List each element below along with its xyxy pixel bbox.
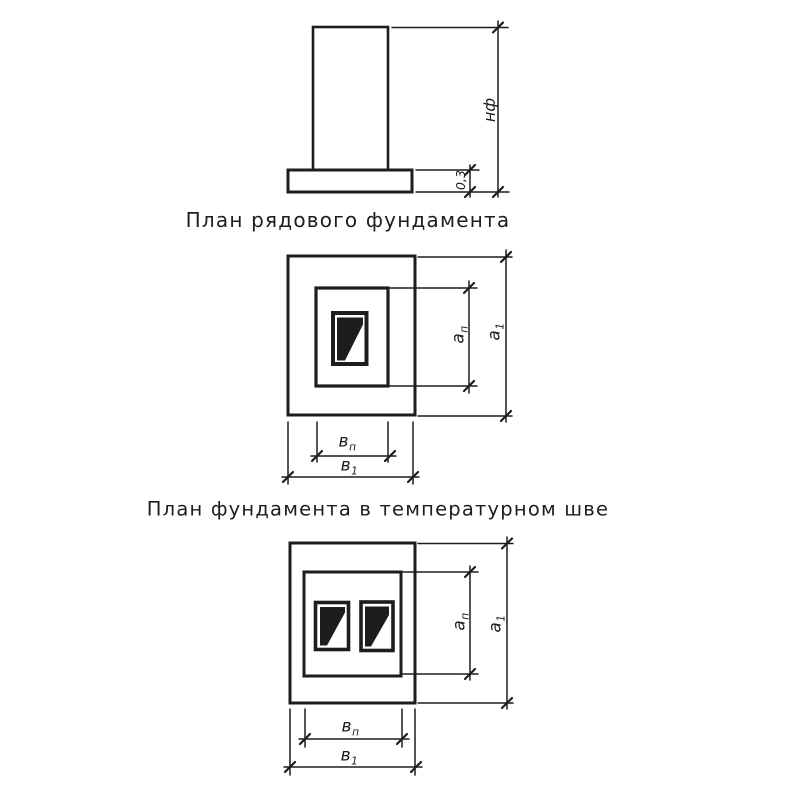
drawing-sheet: нф 0,3 План рядового фундамента ап а1 вп… bbox=[0, 0, 800, 800]
expansion-joint-foundation-plan bbox=[284, 537, 513, 775]
regular-foundation-plan bbox=[282, 250, 512, 484]
dim-label-a-p-2-base: а bbox=[450, 620, 470, 630]
dim-label-a-1-2-sub: 1 bbox=[495, 615, 507, 622]
elevation-view bbox=[288, 21, 509, 197]
dim-label-b-1-2-sub: 1 bbox=[351, 755, 358, 767]
dim-label-b-p-base: в bbox=[339, 432, 349, 452]
dim-label-b-p-2-base: в bbox=[342, 717, 352, 737]
dim-label-b-1-2: в1 bbox=[341, 748, 358, 765]
dim-label-a-p-base: а bbox=[449, 333, 469, 343]
dim-label-a-p: ап bbox=[451, 326, 468, 343]
dim-label-b-1: в1 bbox=[341, 458, 358, 475]
dim-label-a-1-base: а bbox=[485, 330, 505, 340]
dim-label-b-1-2-base: в bbox=[341, 746, 351, 766]
dim-label-foundation-height: нф bbox=[482, 98, 498, 122]
dim-label-b-1-sub: 1 bbox=[351, 465, 358, 477]
dim-label-slab-thickness: 0,3 bbox=[455, 170, 468, 190]
title-regular-foundation-plan: План рядового фундамента bbox=[186, 210, 511, 230]
dim-label-a-1-2-base: а bbox=[486, 622, 506, 632]
dim-label-a-p-2: ап bbox=[452, 613, 469, 630]
dim-label-a-p-sub: п bbox=[458, 326, 470, 333]
dim-label-b-p-sub: п bbox=[349, 441, 356, 453]
column-outline bbox=[313, 27, 388, 170]
dim-label-b-p: вп bbox=[339, 434, 356, 451]
dim-label-a-1: а1 bbox=[487, 323, 504, 340]
dim-label-b-p-2: вп bbox=[342, 719, 359, 736]
dim-label-b-1-base: в bbox=[341, 456, 351, 476]
drawing-linework bbox=[0, 0, 800, 800]
dim-label-a-1-sub: 1 bbox=[494, 323, 506, 330]
dim-label-b-p-2-sub: п bbox=[352, 726, 359, 738]
dim-label-a-p-2-sub: п bbox=[459, 613, 471, 620]
title-expansion-joint-foundation-plan: План фундамента в температурном шве bbox=[147, 499, 609, 519]
dim-label-a-1-2: а1 bbox=[488, 615, 505, 632]
footing-plan-outline bbox=[290, 543, 415, 703]
footing-slab-outline bbox=[288, 170, 412, 192]
